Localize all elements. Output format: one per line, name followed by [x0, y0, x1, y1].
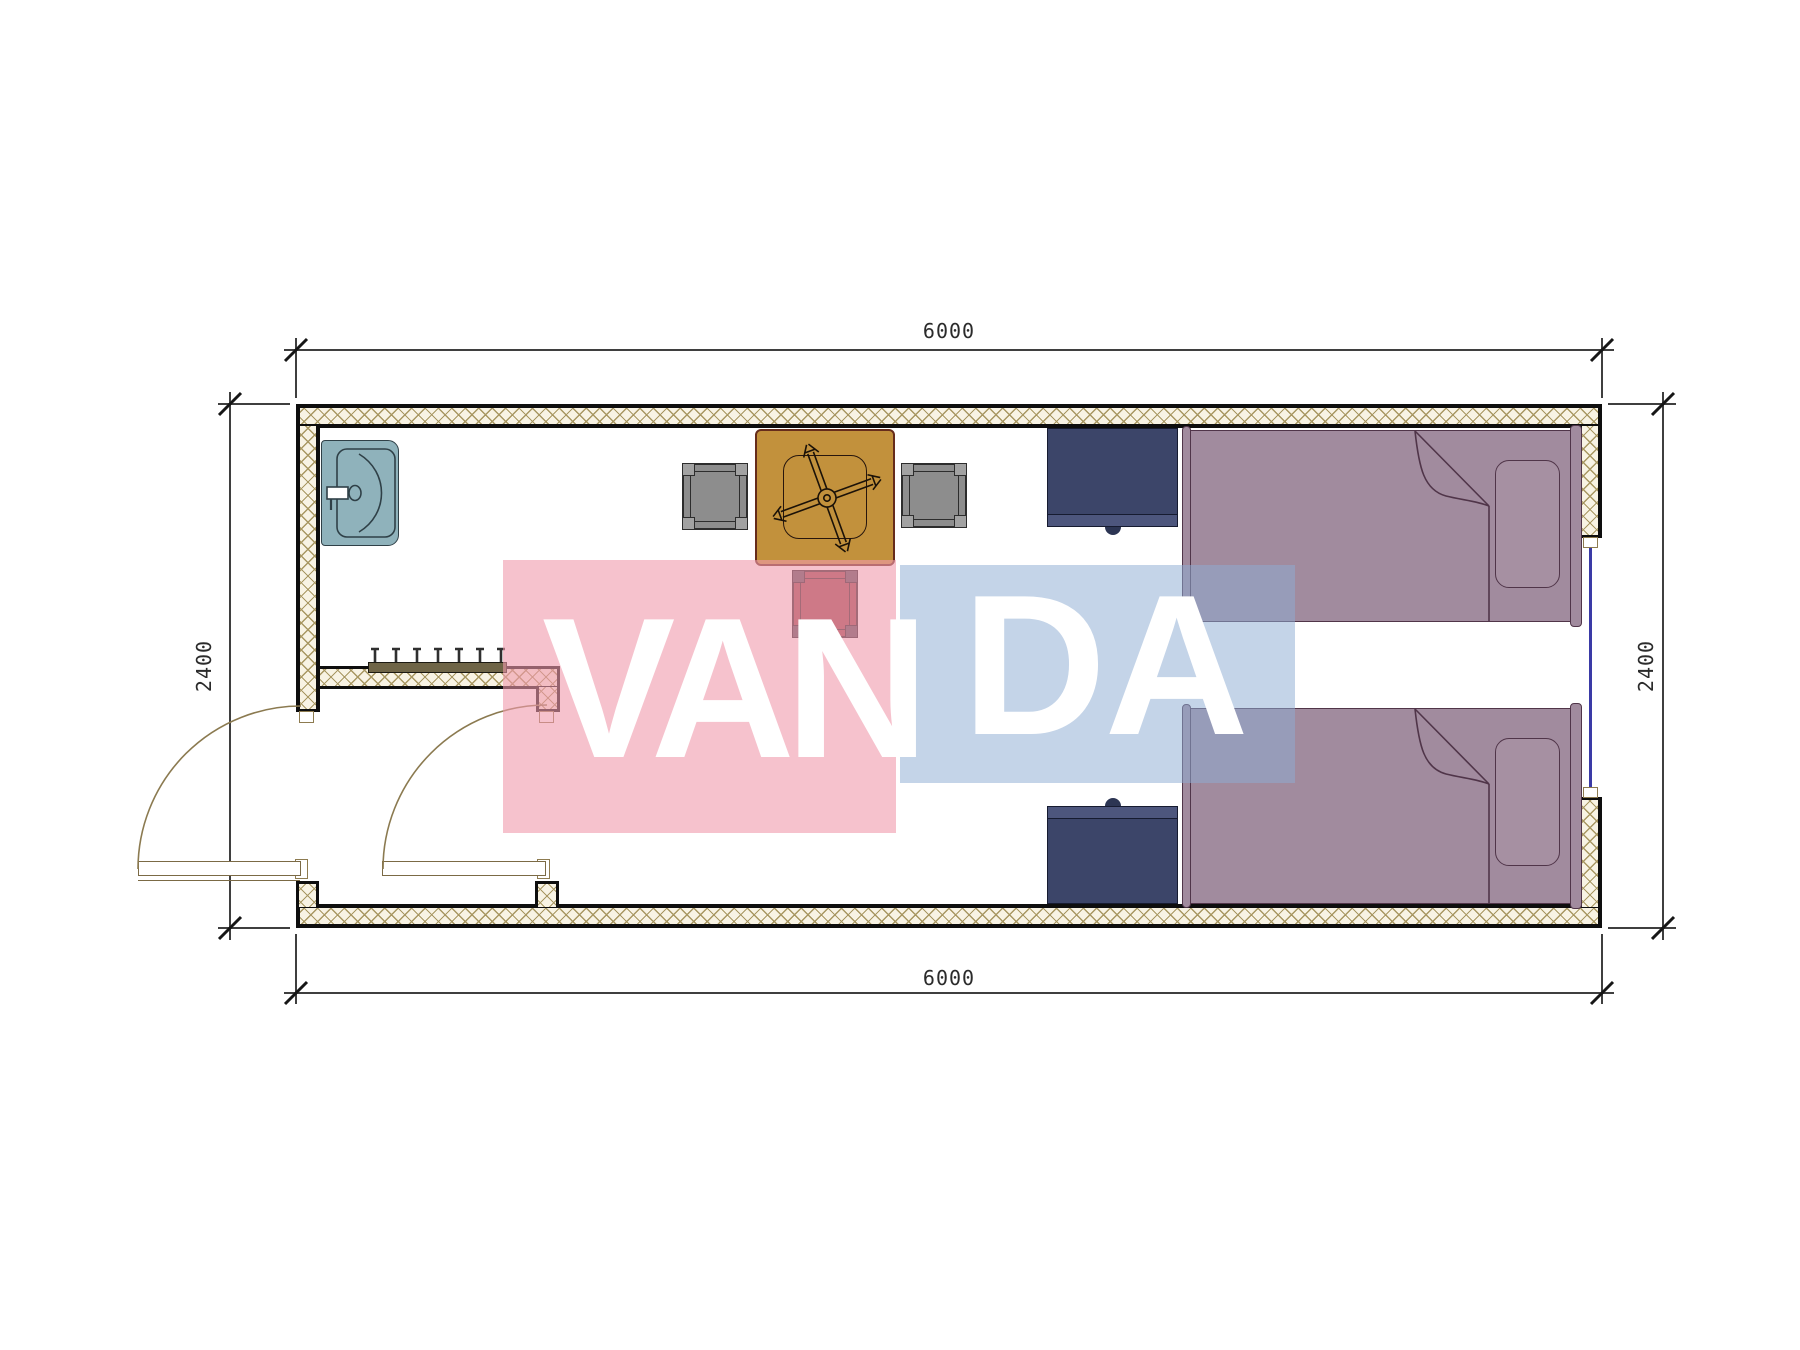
top-extension-right — [1601, 338, 1603, 398]
bed-headboard-top — [1570, 425, 1582, 627]
watermark-text-van: VAN — [542, 589, 919, 789]
top-extension-left — [295, 338, 297, 398]
chair-icon-left — [682, 463, 748, 530]
sink-icon — [321, 440, 399, 546]
coat-hooks-icon — [368, 662, 507, 673]
wall-top — [296, 404, 1602, 428]
nightstand-front-panel — [1048, 807, 1177, 819]
pillow-icon-bottom — [1495, 738, 1560, 866]
chair-seat-edge — [690, 471, 740, 522]
right-dimension-label: 2400 — [1633, 626, 1659, 706]
right-dimension-line — [1662, 392, 1664, 940]
top-dimension-label: 6000 — [889, 318, 1009, 344]
nightstand-front-panel — [1048, 514, 1177, 526]
wall-bottom — [296, 904, 1602, 928]
chair-seat-edge — [909, 471, 959, 520]
left-dimension-line — [229, 392, 231, 940]
nightstand-icon-bottom — [1047, 806, 1178, 904]
top-dimension-line — [284, 349, 1614, 351]
jamb-window-top — [1583, 537, 1598, 548]
window-icon — [1589, 548, 1592, 787]
jamb-left-wall-end — [299, 711, 314, 723]
door-jamb-stub-left — [296, 881, 319, 907]
bottom-dimension-label: 6000 — [889, 965, 1009, 991]
door-leaf-icon-exterior — [138, 861, 301, 876]
left-dimension-label: 2400 — [191, 626, 217, 706]
right-extension-bottom — [1608, 927, 1676, 929]
door-jamb-stub-mid — [535, 881, 559, 907]
wall-left — [296, 426, 320, 712]
door-leaf-icon-interior — [382, 861, 546, 876]
pillow-icon-top — [1495, 460, 1560, 588]
nightstand-icon-top — [1047, 428, 1178, 527]
bottom-dimension-line — [284, 992, 1614, 994]
bed-headboard-bottom — [1570, 703, 1582, 909]
chair-icon-right — [901, 463, 967, 528]
bottom-extension-right — [1601, 934, 1603, 1004]
watermark-text-da: DA — [962, 566, 1247, 766]
jamb-window-bottom — [1583, 787, 1598, 798]
bottom-extension-left — [295, 934, 297, 1004]
floor-plan-canvas: 6000 6000 2400 2400 — [0, 0, 1800, 1350]
door-threshold-left — [138, 880, 301, 881]
right-extension-top — [1608, 403, 1676, 405]
table-top-inner-edge — [783, 455, 867, 539]
